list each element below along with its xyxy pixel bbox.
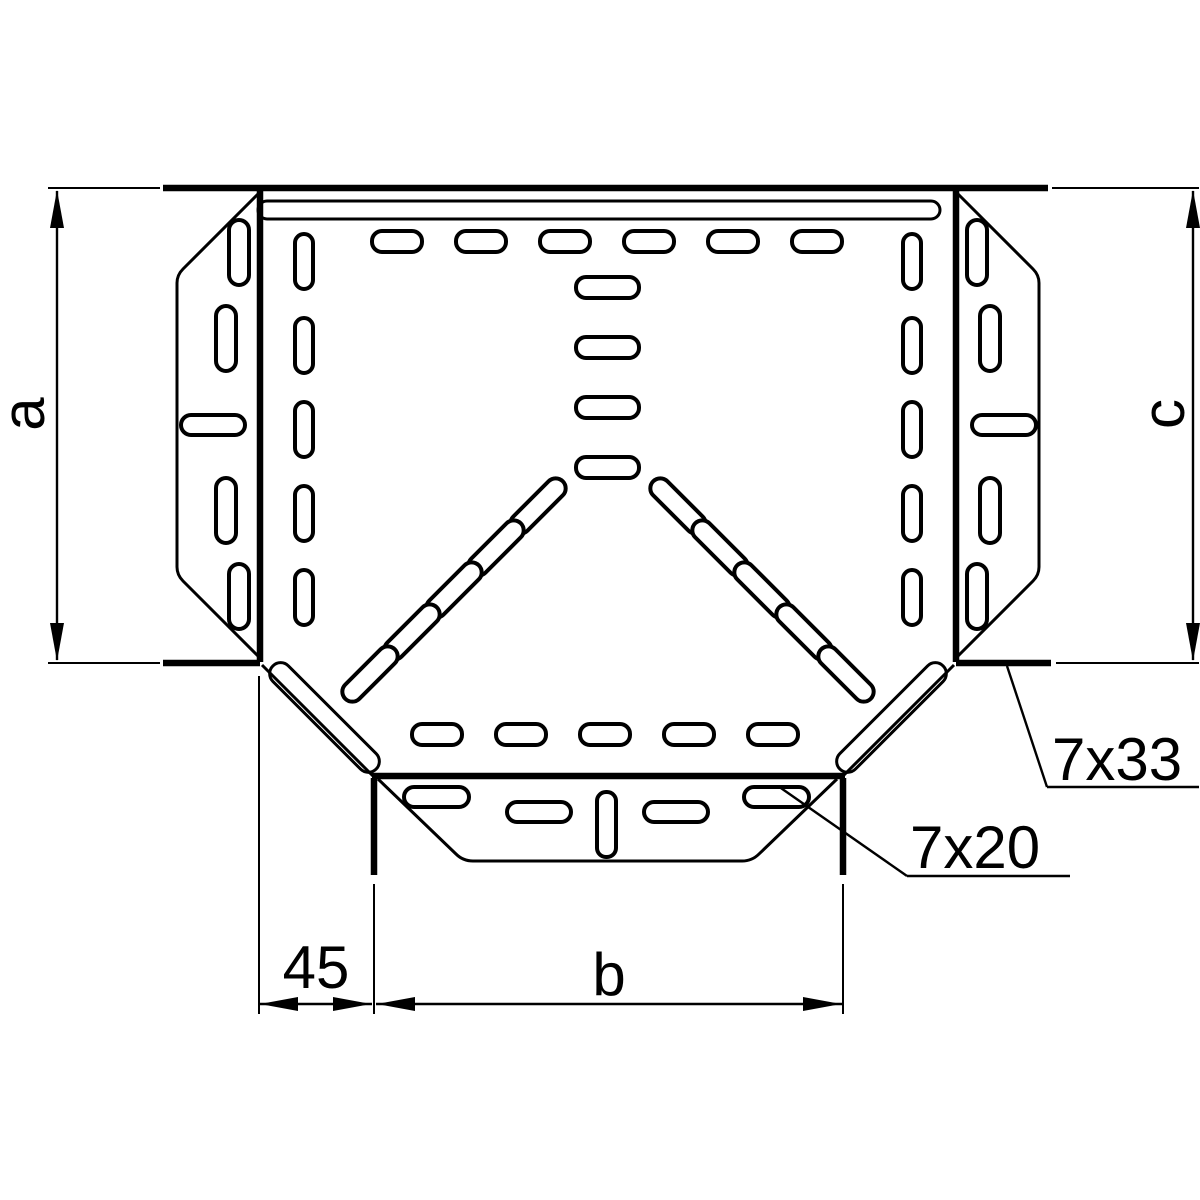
dimension-c: c — [1052, 188, 1200, 663]
perforation-top-row — [372, 231, 842, 252]
perforation-slot — [507, 802, 571, 822]
perforation-bottom-row — [412, 724, 798, 745]
callout-7x33-label: 7x33 — [1052, 726, 1182, 793]
perforation-slot — [903, 570, 921, 625]
perforation-slot — [295, 486, 313, 541]
perforation-slot — [972, 415, 1036, 435]
perforation-slot — [624, 231, 674, 252]
perforation-chevron-left — [338, 474, 570, 706]
callout-7x20-label: 7x20 — [910, 814, 1040, 881]
perforation-slot — [540, 231, 590, 252]
perforation-slot — [404, 787, 469, 807]
perforation-slot — [216, 478, 236, 543]
perforation-slot — [412, 724, 462, 745]
perforation-slot — [967, 564, 987, 629]
perforation-slot — [181, 415, 245, 435]
callout-7x20: 7x20 — [778, 786, 1070, 881]
perforation-slot — [295, 402, 313, 457]
dimension-a-label: a — [0, 397, 57, 431]
perforation-slot — [903, 318, 921, 373]
arrowhead-right — [803, 997, 841, 1011]
perforation-slot — [229, 220, 249, 285]
perforation-slot — [903, 402, 921, 457]
perforation-right-flange — [967, 220, 1036, 629]
perforation-slot — [456, 231, 506, 252]
perforation-chevron-right — [646, 474, 878, 706]
leader-line — [1007, 666, 1047, 787]
perforation-slot — [229, 564, 249, 629]
arrowhead-down — [50, 623, 64, 661]
perforation-slot — [338, 642, 402, 706]
drawing-canvas: a c 45 b 7x33 7x20 — [0, 0, 1200, 1200]
perforation-slot — [980, 306, 1000, 371]
perforation-slot — [967, 220, 987, 285]
perforation-slot — [576, 397, 639, 418]
technical-drawing: a c 45 b 7x33 7x20 — [0, 0, 1200, 1200]
perforation-slot — [580, 724, 630, 745]
perforation-slot — [792, 231, 842, 252]
perforation-slot — [748, 724, 798, 745]
arrowhead-up — [50, 190, 64, 228]
perforation-slot — [576, 337, 639, 358]
perforation-slot — [903, 234, 921, 289]
perforation-slot — [980, 478, 1000, 543]
perforation-slot — [576, 277, 639, 298]
dimension-a: a — [0, 188, 160, 663]
perforation-bottom-flange — [404, 787, 809, 857]
perforation-slot — [814, 642, 878, 706]
arrowhead-left — [377, 997, 415, 1011]
perforation-slot — [496, 724, 546, 745]
perforation-slot — [744, 787, 809, 807]
dimension-b: b — [374, 884, 843, 1014]
perforation-slot — [597, 792, 616, 857]
perforation-left-wall-column — [295, 234, 313, 625]
perforation-slot — [295, 318, 313, 373]
top-rolled-edge — [258, 201, 940, 219]
callout-7x33: 7x33 — [1007, 666, 1199, 793]
perforation-slot — [708, 231, 758, 252]
dimension-45: 45 — [259, 676, 372, 1014]
perforation-left-flange — [181, 220, 249, 629]
arrowhead-up — [1186, 190, 1200, 228]
perforation-slot — [903, 486, 921, 541]
perforation-slot — [644, 802, 708, 822]
perforation-slot — [372, 231, 422, 252]
perforation-center-column — [576, 277, 639, 478]
arrowhead-down — [1186, 623, 1200, 661]
dimension-c-label: c — [1130, 399, 1197, 429]
dimension-45-label: 45 — [283, 934, 350, 1001]
perforation-slot — [295, 570, 313, 625]
dimension-b-label: b — [592, 941, 625, 1008]
perforation-slot — [216, 306, 236, 371]
perforation-slot — [576, 457, 639, 478]
perforation-slot — [664, 724, 714, 745]
perforation-right-wall-column — [903, 234, 921, 625]
perforation-slot — [295, 234, 313, 289]
